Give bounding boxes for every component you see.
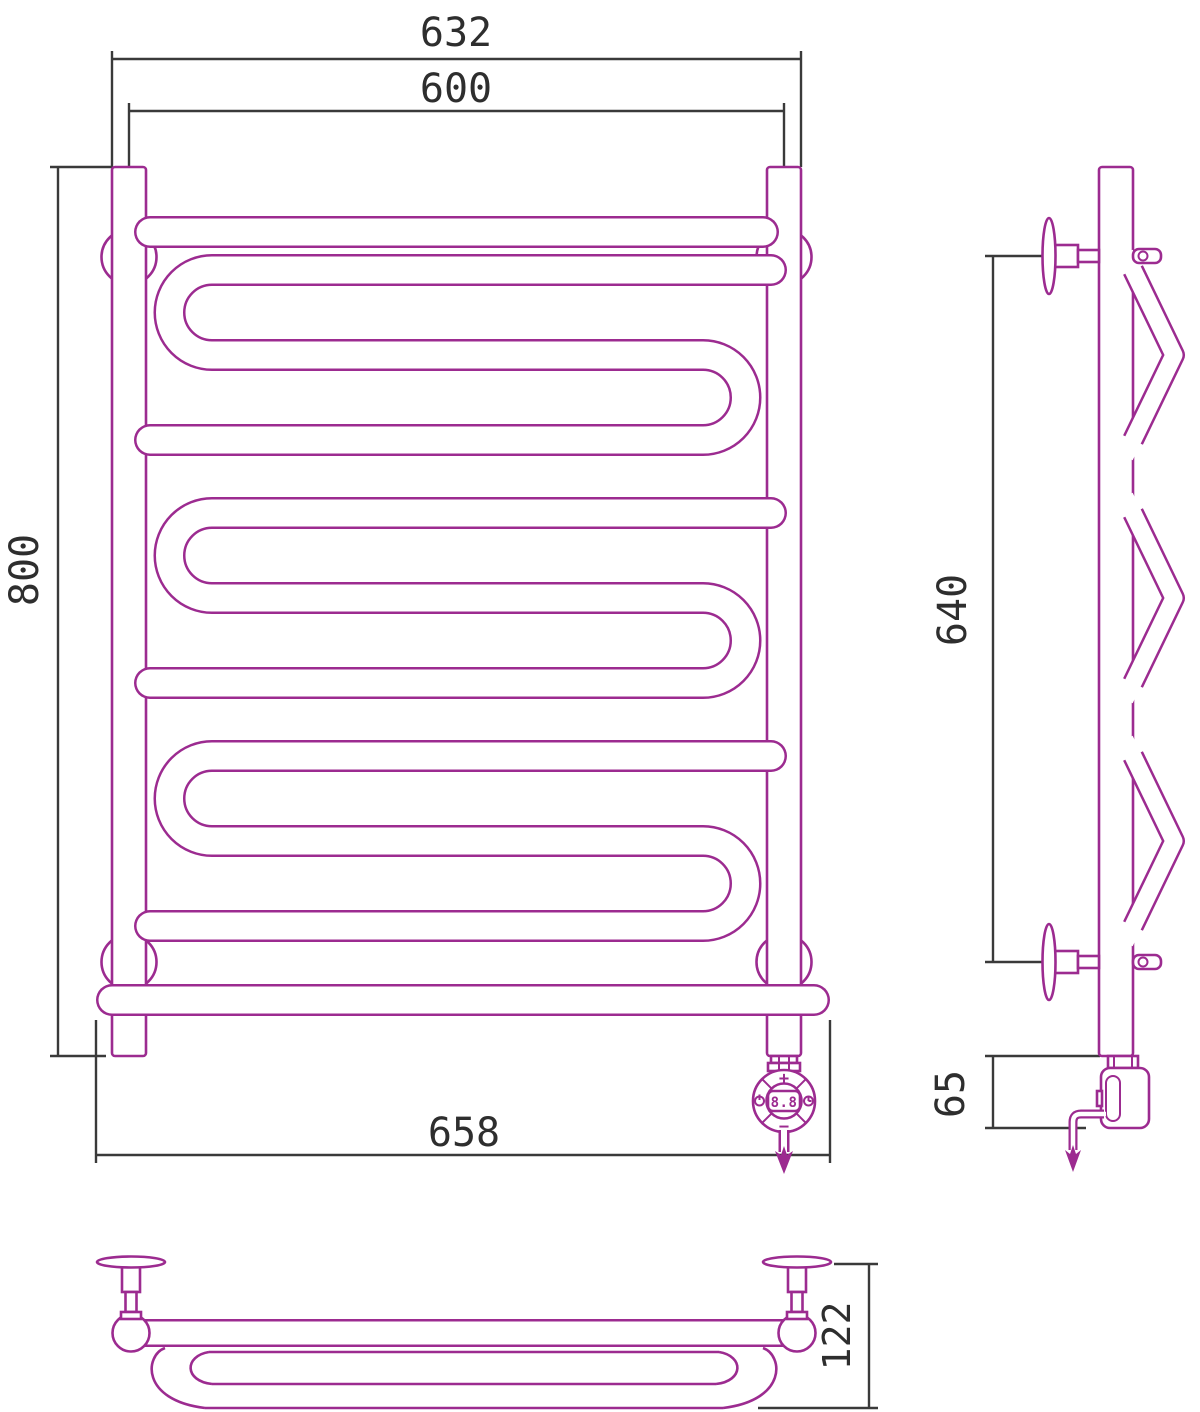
cable-flash-icon [775,1146,793,1174]
bracket-flange [1043,924,1056,1000]
plus-label: + [779,1069,789,1089]
bottom-view-bracket-left [97,1257,165,1320]
display-value: 8.8 [771,1095,798,1111]
cable-flash-icon [1065,1145,1081,1172]
dim-heater-height: 65 [928,1070,974,1118]
bracket-stem [1078,250,1099,262]
dim-bottom-width: 658 [428,1110,500,1156]
dim-mount-span: 640 [930,574,976,646]
loop-arc-inner-left [191,1352,212,1384]
thermostat-assembly: + − 8.8 [753,1056,815,1174]
dim-height: 800 [2,534,48,606]
side-power-cable [1073,1114,1104,1150]
dim-axis-width: 600 [420,66,492,112]
housing-tab [1097,1091,1102,1106]
bracket-flange [763,1257,831,1268]
dim-depth: 122 [815,1302,859,1371]
bracket-stem [1078,956,1099,968]
bottom-view-loop [152,1348,777,1408]
serpentine-coil-3-fill [150,756,771,926]
bracket-stem [792,1292,803,1312]
serpentine-coil-2-fill [150,513,771,683]
bracket-stem [126,1292,137,1312]
front-view: + − 8.8 [102,167,816,1174]
bracket-flange [1043,218,1056,294]
bottom-view [97,1257,831,1409]
heater-neck [1108,1056,1138,1068]
dim-outer-width: 632 [420,10,492,56]
serpentine-coil-1-fill [150,270,771,440]
bracket-stem [788,1267,806,1292]
drawing-page: 632 600 800 658 640 65 122 [0,0,1200,1412]
bracket-collar [787,1312,807,1319]
bracket-flange [97,1257,165,1268]
bracket-stem [122,1267,140,1292]
right-post [767,167,801,1056]
side-view [1043,167,1175,1172]
loop-arc-inner-right [716,1352,737,1384]
bracket-collar [121,1312,141,1319]
technical-drawing-canvas: 632 600 800 658 640 65 122 [0,0,1200,1412]
heater-housing-side [1065,1056,1149,1172]
